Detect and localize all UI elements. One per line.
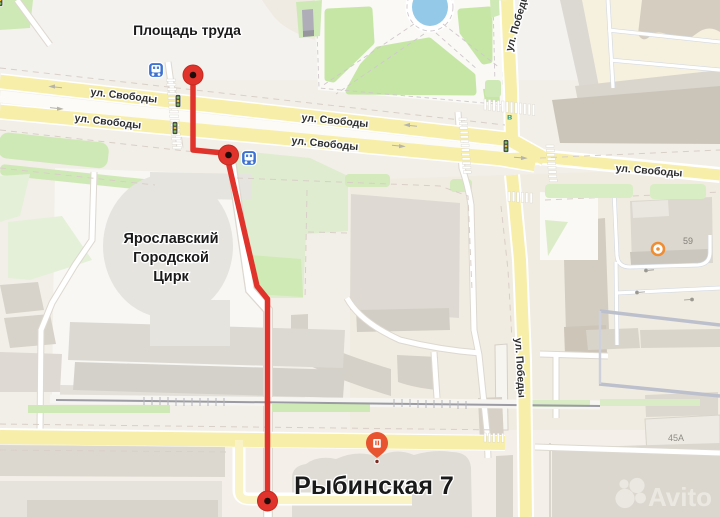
svg-text:в: в bbox=[507, 112, 512, 122]
svg-text:Ярославский: Ярославский bbox=[124, 231, 219, 247]
svg-text:Цирк: Цирк bbox=[153, 269, 189, 285]
svg-text:45А: 45А bbox=[668, 433, 684, 443]
svg-text:Городской: Городской bbox=[133, 250, 209, 266]
svg-text:59: 59 bbox=[683, 236, 693, 246]
svg-text:Площадь труда: Площадь труда bbox=[133, 22, 241, 38]
svg-text:Рыбинская 7: Рыбинская 7 bbox=[294, 472, 454, 500]
svg-text:Avito: Avito bbox=[648, 482, 712, 512]
